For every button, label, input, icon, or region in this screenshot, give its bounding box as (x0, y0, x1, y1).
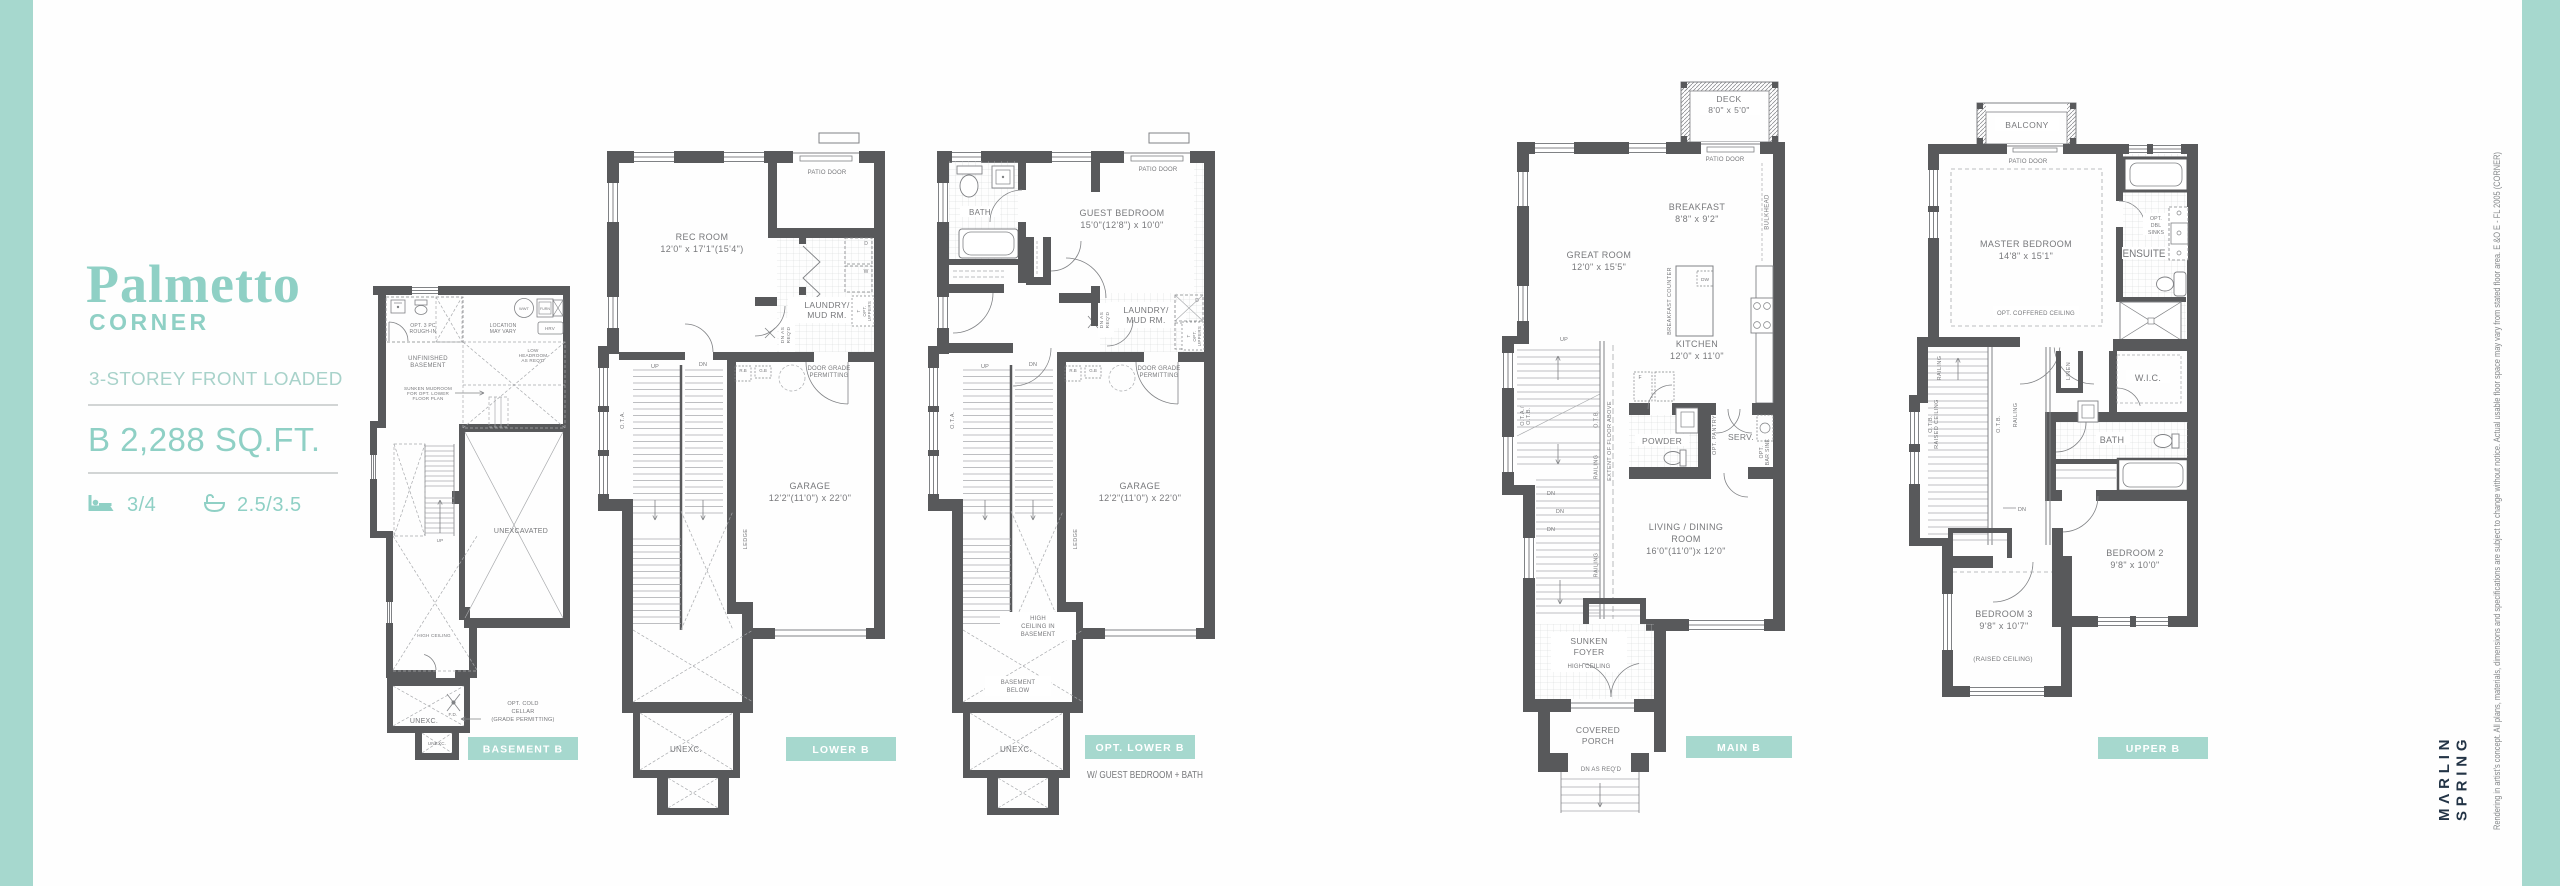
svg-text:HRV: HRV (545, 326, 555, 331)
svg-text:UP: UP (1560, 337, 1568, 343)
svg-text:ROOM: ROOM (1671, 534, 1701, 544)
svg-text:RAILING: RAILING (1937, 356, 1943, 381)
svg-text:Palmetto: Palmetto (86, 254, 301, 314)
svg-text:UNFINISHED: UNFINISHED (408, 356, 448, 362)
svg-text:PATIO DOOR: PATIO DOOR (808, 170, 847, 176)
svg-text:O.T.A.: O.T.A. (620, 411, 626, 429)
svg-text:MAY VARY: MAY VARY (490, 329, 517, 335)
svg-text:CORNER: CORNER (89, 309, 210, 335)
svg-text:BASEMENT: BASEMENT (410, 363, 445, 369)
svg-text:3/4: 3/4 (127, 494, 156, 516)
svg-text:O.T.B.: O.T.B. (1594, 410, 1600, 428)
svg-text:LOWER B: LOWER B (812, 744, 869, 756)
svg-text:DOOR GRADE: DOOR GRADE (807, 366, 850, 372)
svg-text:GARAGE: GARAGE (790, 481, 831, 491)
svg-text:(RAISED CEILING): (RAISED CEILING) (1973, 656, 2033, 663)
svg-text:8'8" x 9'2": 8'8" x 9'2" (1675, 214, 1719, 224)
svg-text:DECK: DECK (1716, 94, 1741, 104)
svg-text:SERV.: SERV. (1728, 432, 1754, 442)
svg-text:O.T.B.: O.T.B. (1526, 407, 1532, 425)
svg-text:RAILING: RAILING (2013, 403, 2019, 428)
svg-text:DN: DN (2018, 507, 2026, 513)
svg-text:MUD RM.: MUD RM. (1126, 315, 1165, 325)
svg-text:LIVING / DINING: LIVING / DINING (1649, 522, 1724, 532)
svg-text:12'2"(11'0") x 22'0": 12'2"(11'0") x 22'0" (769, 493, 852, 503)
svg-text:FLOOR PLAN: FLOOR PLAN (412, 396, 443, 401)
svg-text:8'0" x 5'0": 8'0" x 5'0" (1708, 105, 1750, 115)
svg-text:PATIO DOOR: PATIO DOOR (1706, 157, 1745, 163)
svg-text:W.I.C.: W.I.C. (2135, 373, 2161, 383)
svg-text:MUD RM.: MUD RM. (807, 310, 846, 320)
svg-text:9'8" x 10'0": 9'8" x 10'0" (2110, 560, 2159, 570)
svg-text:HIGH CEILING: HIGH CEILING (417, 633, 451, 638)
svg-text:R.B: R.B (1069, 368, 1076, 373)
svg-text:BEDROOM 3: BEDROOM 3 (1975, 609, 2033, 619)
svg-text:12'2"(11'0") x 22'0": 12'2"(11'0") x 22'0" (1099, 493, 1182, 503)
svg-text:B 2,288 SQ.FT.: B 2,288 SQ.FT. (88, 421, 321, 458)
svg-text:RAILING: RAILING (1594, 553, 1600, 578)
svg-text:BREAKFAST: BREAKFAST (1669, 202, 1726, 212)
svg-text:ROUGH-IN: ROUGH-IN (410, 329, 437, 335)
svg-text:BATH: BATH (2100, 435, 2125, 445)
svg-text:UP: UP (437, 538, 444, 543)
svg-text:DW: DW (1701, 277, 1709, 283)
svg-text:AS REQ'D: AS REQ'D (521, 358, 545, 363)
svg-text:DN AS: DN AS (1099, 312, 1105, 328)
svg-text:SUNKEN: SUNKEN (1570, 636, 1607, 646)
svg-text:UP: UP (981, 364, 989, 370)
svg-text:D: D (864, 241, 868, 247)
svg-text:PATIO DOOR: PATIO DOOR (1139, 167, 1178, 173)
svg-text:LAUNDRY/: LAUNDRY/ (804, 300, 850, 310)
svg-text:RAISED CEILING: RAISED CEILING (1934, 399, 1940, 449)
svg-text:O.T.A.: O.T.A. (950, 411, 956, 429)
svg-text:UP: UP (651, 364, 659, 370)
svg-text:BULKHEAD: BULKHEAD (1765, 194, 1771, 230)
svg-text:GUEST BEDROOM: GUEST BEDROOM (1079, 208, 1164, 218)
svg-text:UPPERS: UPPERS (867, 301, 872, 321)
svg-text:BAR SINK: BAR SINK (1765, 438, 1771, 465)
svg-text:MAIN B: MAIN B (1717, 742, 1761, 754)
svg-text:CELLAR: CELLAR (512, 709, 535, 715)
svg-text:DN AS REQ'D: DN AS REQ'D (1581, 767, 1622, 773)
svg-text:COVERED: COVERED (1576, 725, 1620, 735)
svg-text:SINKS: SINKS (2148, 230, 2165, 236)
svg-text:BATH: BATH (969, 208, 991, 217)
svg-text:REQ'D: REQ'D (786, 326, 792, 343)
svg-text:12'0" x 15'5": 12'0" x 15'5" (1572, 262, 1627, 272)
svg-text:LEDGE: LEDGE (1073, 529, 1079, 550)
svg-text:T: T (1186, 334, 1191, 337)
svg-text:EXTENT OF FLOOR ABOVE: EXTENT OF FLOOR ABOVE (1607, 401, 1613, 481)
svg-text:14'8" x 15'1": 14'8" x 15'1" (1999, 251, 2054, 261)
svg-text:OPT. LOWER B: OPT. LOWER B (1095, 742, 1184, 754)
svg-text:DN: DN (1547, 527, 1555, 533)
svg-text:PERMITTING: PERMITTING (810, 373, 849, 379)
svg-text:3-STOREY FRONT LOADED: 3-STOREY FRONT LOADED (89, 368, 343, 389)
svg-text:ENSUITE: ENSUITE (2123, 248, 2166, 260)
svg-text:LAUNDRY/: LAUNDRY/ (1123, 305, 1169, 315)
svg-text:UNEXC.: UNEXC. (670, 745, 702, 754)
svg-text:PERMITTING: PERMITTING (1140, 373, 1179, 379)
svg-text:(GRADE PERMITTING): (GRADE PERMITTING) (491, 717, 554, 723)
svg-text:RAILING: RAILING (1594, 455, 1600, 480)
svg-text:T: T (856, 309, 861, 312)
svg-text:UNEXC.: UNEXC. (410, 718, 438, 725)
svg-text:G.B: G.B (759, 368, 767, 373)
svg-text:GARAGE: GARAGE (1120, 481, 1161, 491)
svg-text:UPPER B: UPPER B (2126, 743, 2180, 755)
svg-text:WWT: WWT (519, 306, 530, 311)
svg-text:MΛRLIN: MΛRLIN (2436, 735, 2453, 821)
svg-text:BREAKFAST COUNTER: BREAKFAST COUNTER (1667, 267, 1673, 335)
svg-text:12'0" x 17'1"(15'4"): 12'0" x 17'1"(15'4") (660, 244, 743, 254)
svg-text:GREAT ROOM: GREAT ROOM (1567, 250, 1632, 260)
svg-text:PATIO DOOR: PATIO DOOR (2009, 159, 2048, 165)
svg-text:9'8" x 10'7": 9'8" x 10'7" (1979, 621, 2028, 631)
svg-text:HIGH: HIGH (1030, 616, 1046, 622)
svg-text:F: F (1638, 375, 1641, 381)
svg-text:O.T.B.: O.T.B. (1996, 415, 2002, 433)
svg-text:15'0"(12'8") x 10'0": 15'0"(12'8") x 10'0" (1080, 220, 1163, 230)
svg-text:BEDROOM 2: BEDROOM 2 (2106, 548, 2164, 558)
svg-text:OPT. COFFERED CEILING: OPT. COFFERED CEILING (1997, 311, 2075, 317)
svg-text:FURN: FURN (540, 307, 550, 311)
svg-text:BELOW: BELOW (1007, 688, 1030, 694)
svg-text:DBL: DBL (2151, 223, 2161, 229)
svg-text:BASEMENT: BASEMENT (1021, 632, 1056, 638)
svg-text:W: W (864, 269, 869, 275)
svg-text:G.B: G.B (1089, 368, 1097, 373)
svg-text:KITCHEN: KITCHEN (1676, 339, 1718, 349)
svg-text:DN: DN (1556, 509, 1564, 515)
svg-text:OPT.: OPT. (2150, 216, 2162, 222)
svg-text:R.B: R.B (739, 368, 746, 373)
svg-text:REC ROOM: REC ROOM (676, 232, 729, 242)
svg-text:BASEMENT B: BASEMENT B (483, 744, 563, 756)
svg-text:FOYER: FOYER (1574, 647, 1605, 657)
svg-text:16'0"(11'0")x 12'0": 16'0"(11'0")x 12'0" (1646, 546, 1726, 556)
svg-text:UNEXC.: UNEXC. (1000, 745, 1032, 754)
svg-text:PORCH: PORCH (1582, 736, 1614, 746)
svg-text:Rendering in artist’s concept.: Rendering in artist’s concept. All plans… (2492, 152, 2502, 830)
svg-text:W/ GUEST BEDROOM + BATH: W/ GUEST BEDROOM + BATH (1087, 769, 1203, 781)
svg-text:DN AS: DN AS (780, 327, 786, 343)
svg-text:POWDER: POWDER (1642, 436, 1682, 446)
svg-text:UNEXCAVATED: UNEXCAVATED (494, 528, 548, 535)
svg-text:BASEMENT: BASEMENT (1001, 680, 1036, 686)
svg-text:DN: DN (699, 362, 707, 368)
svg-text:DN: DN (1547, 491, 1555, 497)
svg-text:UPPERS: UPPERS (1197, 326, 1202, 346)
svg-text:F.D.: F.D. (449, 712, 458, 717)
svg-text:2.5/3.5: 2.5/3.5 (237, 494, 302, 516)
svg-text:BALCONY: BALCONY (2005, 120, 2048, 130)
svg-text:DN: DN (1029, 362, 1037, 368)
svg-text:SPRING: SPRING (2454, 735, 2471, 821)
svg-text:CEILING IN: CEILING IN (1021, 624, 1055, 630)
svg-text:12'0" x 11'0": 12'0" x 11'0" (1670, 351, 1724, 361)
svg-text:MASTER BEDROOM: MASTER BEDROOM (1980, 239, 2072, 249)
svg-text:REQ'D: REQ'D (1105, 311, 1111, 328)
svg-text:UNEXC.: UNEXC. (428, 741, 447, 746)
svg-text:OPT. COLD: OPT. COLD (507, 701, 538, 707)
svg-text:DOOR GRADE: DOOR GRADE (1137, 366, 1180, 372)
svg-text:OPT. PANTRY: OPT. PANTRY (1712, 415, 1718, 455)
svg-text:LEDGE: LEDGE (743, 529, 749, 550)
svg-text:LINEN: LINEN (2066, 362, 2072, 380)
